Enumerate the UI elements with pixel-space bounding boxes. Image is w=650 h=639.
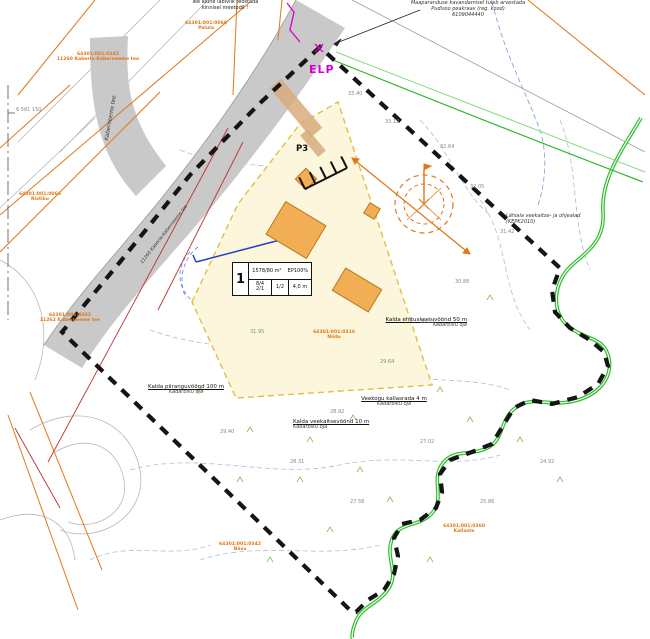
grid-coordinate-label: 6 581 150 [16,108,41,114]
zone-label-limited-zone: Kalda piiranguvöönd 100 m Kadarbiku oja [126,384,246,396]
zone-label-building-exclusion: Kalda ehituskeeluvöönd 50 m Kadarbiku oj… [355,317,467,329]
elp-marker: ELP [309,64,335,77]
spot-elevation: 31.95 [250,330,264,336]
spot-elevation: 29.64 [380,360,394,366]
spot-elevation: 33.12 [385,120,399,126]
spot-elevation: 30.88 [455,280,469,286]
spot-elevation: 33.40 [348,92,362,98]
cadastral-label-nasu: 64301:001:0342 Näsu [194,542,286,553]
spot-elevation: 30.25 [420,320,434,326]
note-crossing: Tee alune läbiviik teostada kinnisel mee… [160,0,290,12]
cadastral-label-road-11260: 64301:001:0242 11260 Kaberla-Kaberneeme … [28,52,168,63]
plot-use: EP100% [285,263,311,279]
plot-number: 1 [233,263,248,295]
note-drainage: Maaparanduse kavandamisel tuleb arvestad… [388,1,548,18]
spot-elevation: 28.31 [290,460,304,466]
cadastral-label-palula: 64301:001:0060 Palula [158,21,254,32]
cadastral-label-kallaste: 64301:001:0360 Kallaste [418,524,510,535]
note-crossing-line2: kinnisel meetodil ! [202,5,248,11]
spot-elevation: 27.02 [420,440,434,446]
plot-area: 1578/80 m² [249,263,285,279]
note-vicinity: Lähiala veekaitse- ja ohjealad (KEPK2010… [506,214,636,226]
spot-elevation: 27.58 [350,500,364,506]
plot-info-table: 1 1578/80 m² EP100% 8/4 2/1 1/2 4,0 m [232,262,312,296]
spot-elevation: 29.40 [220,430,234,436]
spot-elevation: 32.05 [470,185,484,191]
note-drainage-line3: 6109044440 [452,12,484,18]
spot-elevation: 28.92 [330,410,344,416]
cadastral-label-road-11262: 64301:001:0362 11262 Kaberneeme tee [14,313,126,324]
site-plan: Tee alune läbiviik teostada kinnisel mee… [0,0,650,639]
plot-ratio: 1/2 [272,280,289,296]
cadastral-label-ristiku: 64301:001:0066 Ristiku [0,192,80,203]
plot-height: 4,0 m [289,280,311,296]
zone-label-shore-path: Veekogu kallasrada 4 m Kadarbiku oja [338,396,450,408]
parking-label: P3 [296,145,308,155]
spot-elevation: 31.42 [500,230,514,236]
spot-elevation: 32.64 [440,145,454,151]
note-vicinity-line2: (KEPK2010) [506,219,535,225]
zone-label-water-protection: Kalda veekaitsevöönd 10 m Kadarbiku oja [293,419,405,431]
plot-storeys2: 2/1 [256,287,264,293]
cadastral-label-niidu: 64301:001:0316 Niidu [294,330,374,341]
spot-elevation: 24.92 [540,460,554,466]
spot-elevation: 25.86 [480,500,494,506]
